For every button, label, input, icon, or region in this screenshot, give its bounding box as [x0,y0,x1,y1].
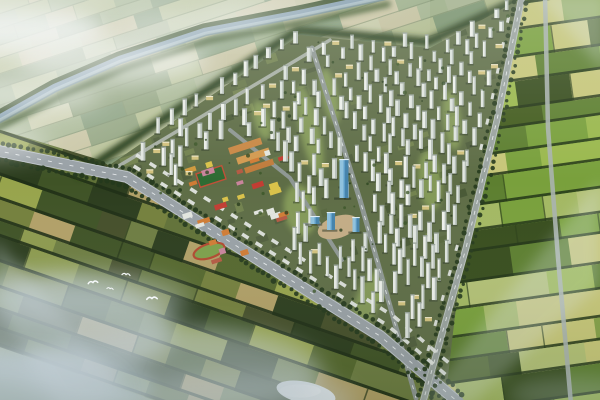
aerial-city-render [0,0,600,400]
color-grade [0,0,600,400]
scene-canvas [0,0,600,400]
